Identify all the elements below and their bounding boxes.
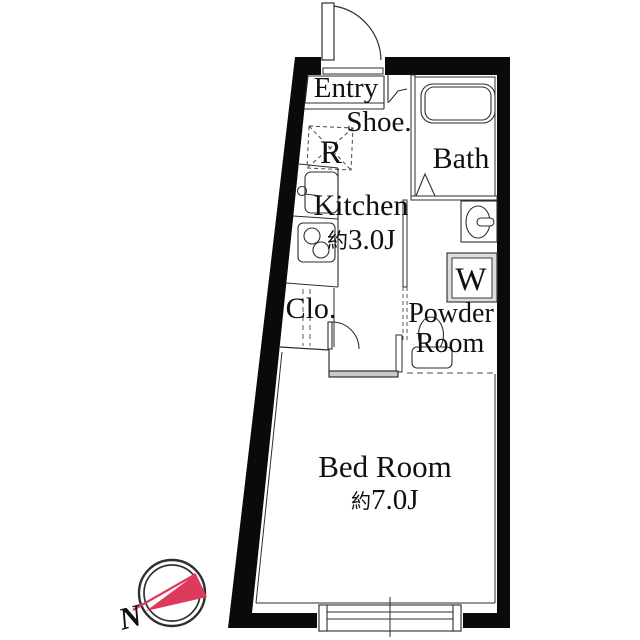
entry-label: Entry (314, 72, 379, 104)
kitchen-size: 3.0J (348, 224, 396, 256)
bedroom-top-left-wall (280, 347, 329, 350)
floor-plan: N Entry Shoe. R Bath Kitchen 約 3.0J Clo.… (0, 0, 640, 640)
bath-door-icon (416, 174, 435, 196)
window-cap-right (453, 605, 461, 631)
shoe-leader-line (389, 89, 407, 102)
bedroom-door-arc (332, 322, 359, 349)
compass-north-label: N (114, 597, 147, 637)
floor-plan-canvas: N Entry Shoe. R Bath Kitchen 約 3.0J Clo.… (0, 0, 640, 640)
closet-label: Clo. (286, 292, 337, 325)
powder-door-opening (403, 287, 407, 343)
window-cap-left (319, 605, 327, 631)
stove-burner-1 (304, 228, 320, 244)
bedroom-label: Bed Room (318, 449, 451, 484)
powder-room-label-line2: Room (416, 328, 485, 359)
washer-label: W (455, 262, 487, 298)
bedroom-door-leaf (328, 322, 332, 349)
kitchen-label: Kitchen (314, 189, 409, 222)
wash-basin-icon (461, 201, 497, 242)
shoe-label: Shoe. (346, 106, 411, 138)
bedroom-size-prefix: 約 (351, 490, 371, 513)
bath-bottom-wall (411, 196, 497, 200)
powder-room-label-line1: Powder (408, 298, 494, 329)
bathtub-inner (425, 87, 491, 120)
kitchen-size-prefix: 約 (327, 229, 348, 253)
bedroom-door-icon (328, 322, 359, 349)
powder-wall-jog (396, 335, 402, 372)
bathtub-icon (421, 84, 495, 123)
bathtub-outer (421, 84, 495, 123)
counter-bottom-edge (286, 283, 338, 287)
bedroom-top-wall (329, 371, 398, 377)
entry-door-leaf (322, 3, 334, 60)
compass-icon: N (114, 560, 207, 637)
bedroom-size: 7.0J (371, 484, 419, 516)
bath-label: Bath (433, 142, 490, 175)
basin-tap (477, 218, 494, 226)
fridge-label: R (320, 135, 342, 171)
